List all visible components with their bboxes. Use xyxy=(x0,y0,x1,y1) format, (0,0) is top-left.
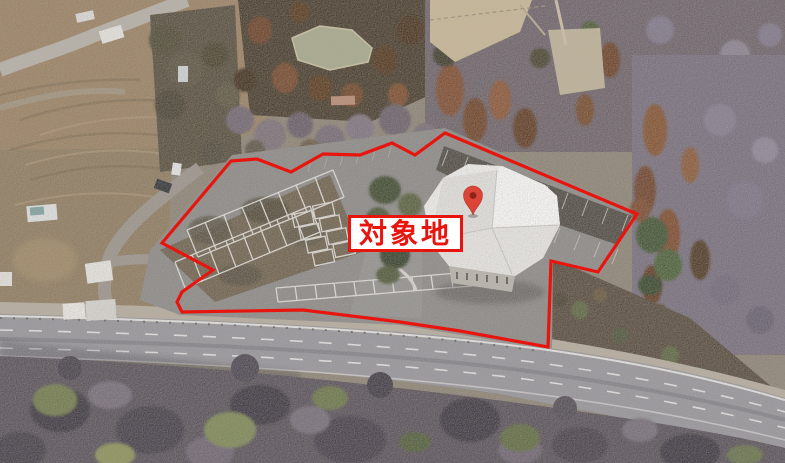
annotated-aerial-map: 対象地 xyxy=(0,0,785,463)
site-label: 対象地 xyxy=(348,215,463,252)
site-label-text: 対象地 xyxy=(359,218,452,249)
